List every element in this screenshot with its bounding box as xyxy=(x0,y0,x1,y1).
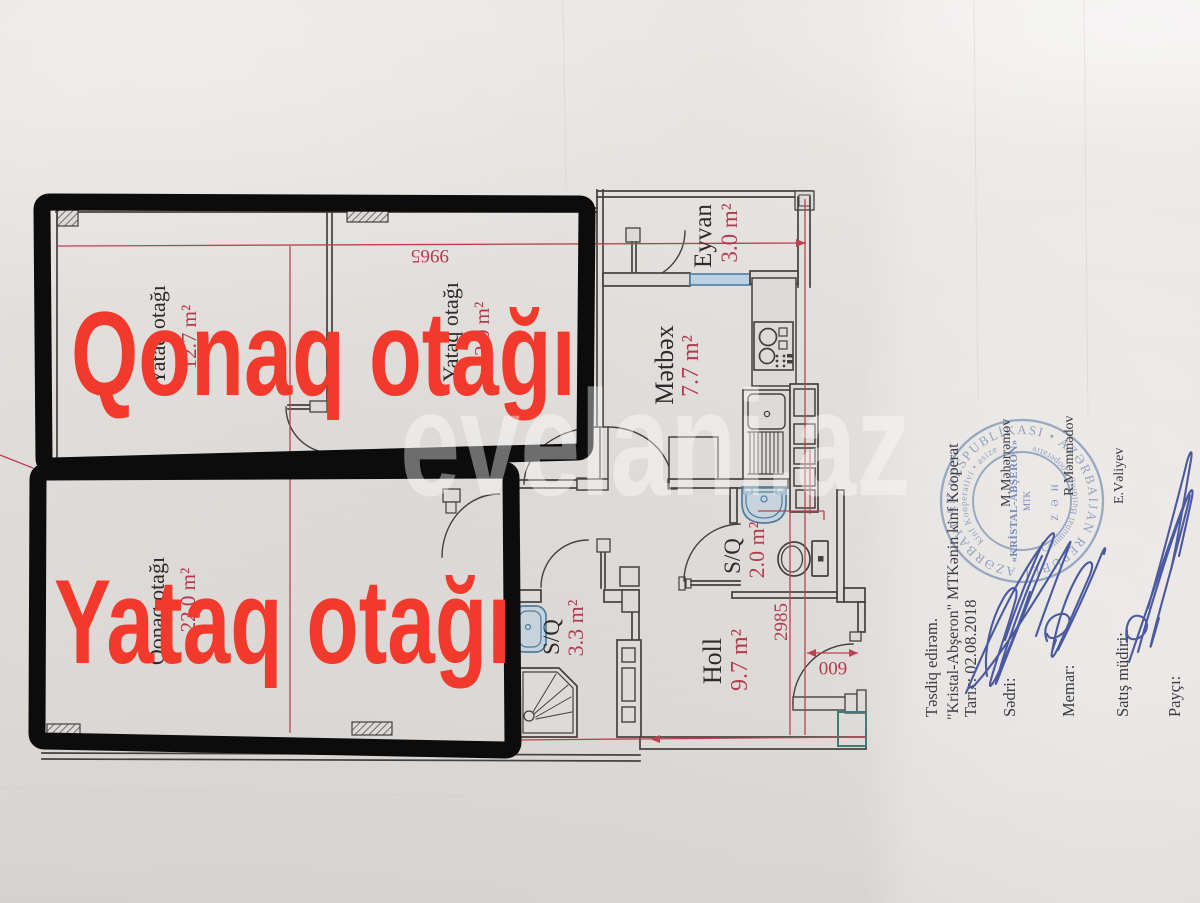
svg-text:S/Q: S/Q xyxy=(720,538,745,574)
svg-text:3.0 m²: 3.0 m² xyxy=(717,203,742,262)
svg-text:9965: 9965 xyxy=(411,245,449,266)
svg-text:"Kristal-Abşeron" MTKənin kinf: "Kristal-Abşeron" MTKənin kinf Kooperat xyxy=(945,443,962,720)
svg-text:Satış müdiri:: Satış müdiri: xyxy=(1113,632,1132,717)
svg-text:Payçı:: Payçı: xyxy=(1165,676,1184,717)
svg-text:Təsdiq edirəm.: Təsdiq edirəm. xyxy=(922,618,941,717)
svg-text:Sədri:: Sədri: xyxy=(1000,678,1019,717)
svg-text:Tarix: 02.08.2018: Tarix: 02.08.2018 xyxy=(961,599,980,717)
svg-text:2985: 2985 xyxy=(771,603,792,641)
svg-text:Z Ə H: Z Ə H xyxy=(1051,481,1061,520)
svg-text:Eyvan: Eyvan xyxy=(690,204,717,268)
svg-text:3.3 m²: 3.3 m² xyxy=(563,599,588,656)
svg-text:S/Q: S/Q xyxy=(539,619,564,655)
svg-text:evelani.az: evelani.az xyxy=(400,360,910,528)
svg-text:Memar:: Memar: xyxy=(1059,665,1078,717)
svg-text:600: 600 xyxy=(819,657,848,678)
svg-text:R.Məmmədov: R.Məmmədov xyxy=(1062,416,1077,497)
svg-text:M.Məhərrəmov: M.Məhərrəmov xyxy=(999,419,1014,507)
svg-text:Yataq otağı: Yataq otağı xyxy=(54,556,511,690)
svg-text:9.7 m²: 9.7 m² xyxy=(727,629,753,691)
svg-text:Holl: Holl xyxy=(698,638,727,684)
svg-text:2.0 m²: 2.0 m² xyxy=(744,521,769,578)
svg-text:E.Vəliyev: E.Vəliyev xyxy=(1112,448,1127,504)
svg-text:MTK: MTK xyxy=(1022,491,1032,512)
